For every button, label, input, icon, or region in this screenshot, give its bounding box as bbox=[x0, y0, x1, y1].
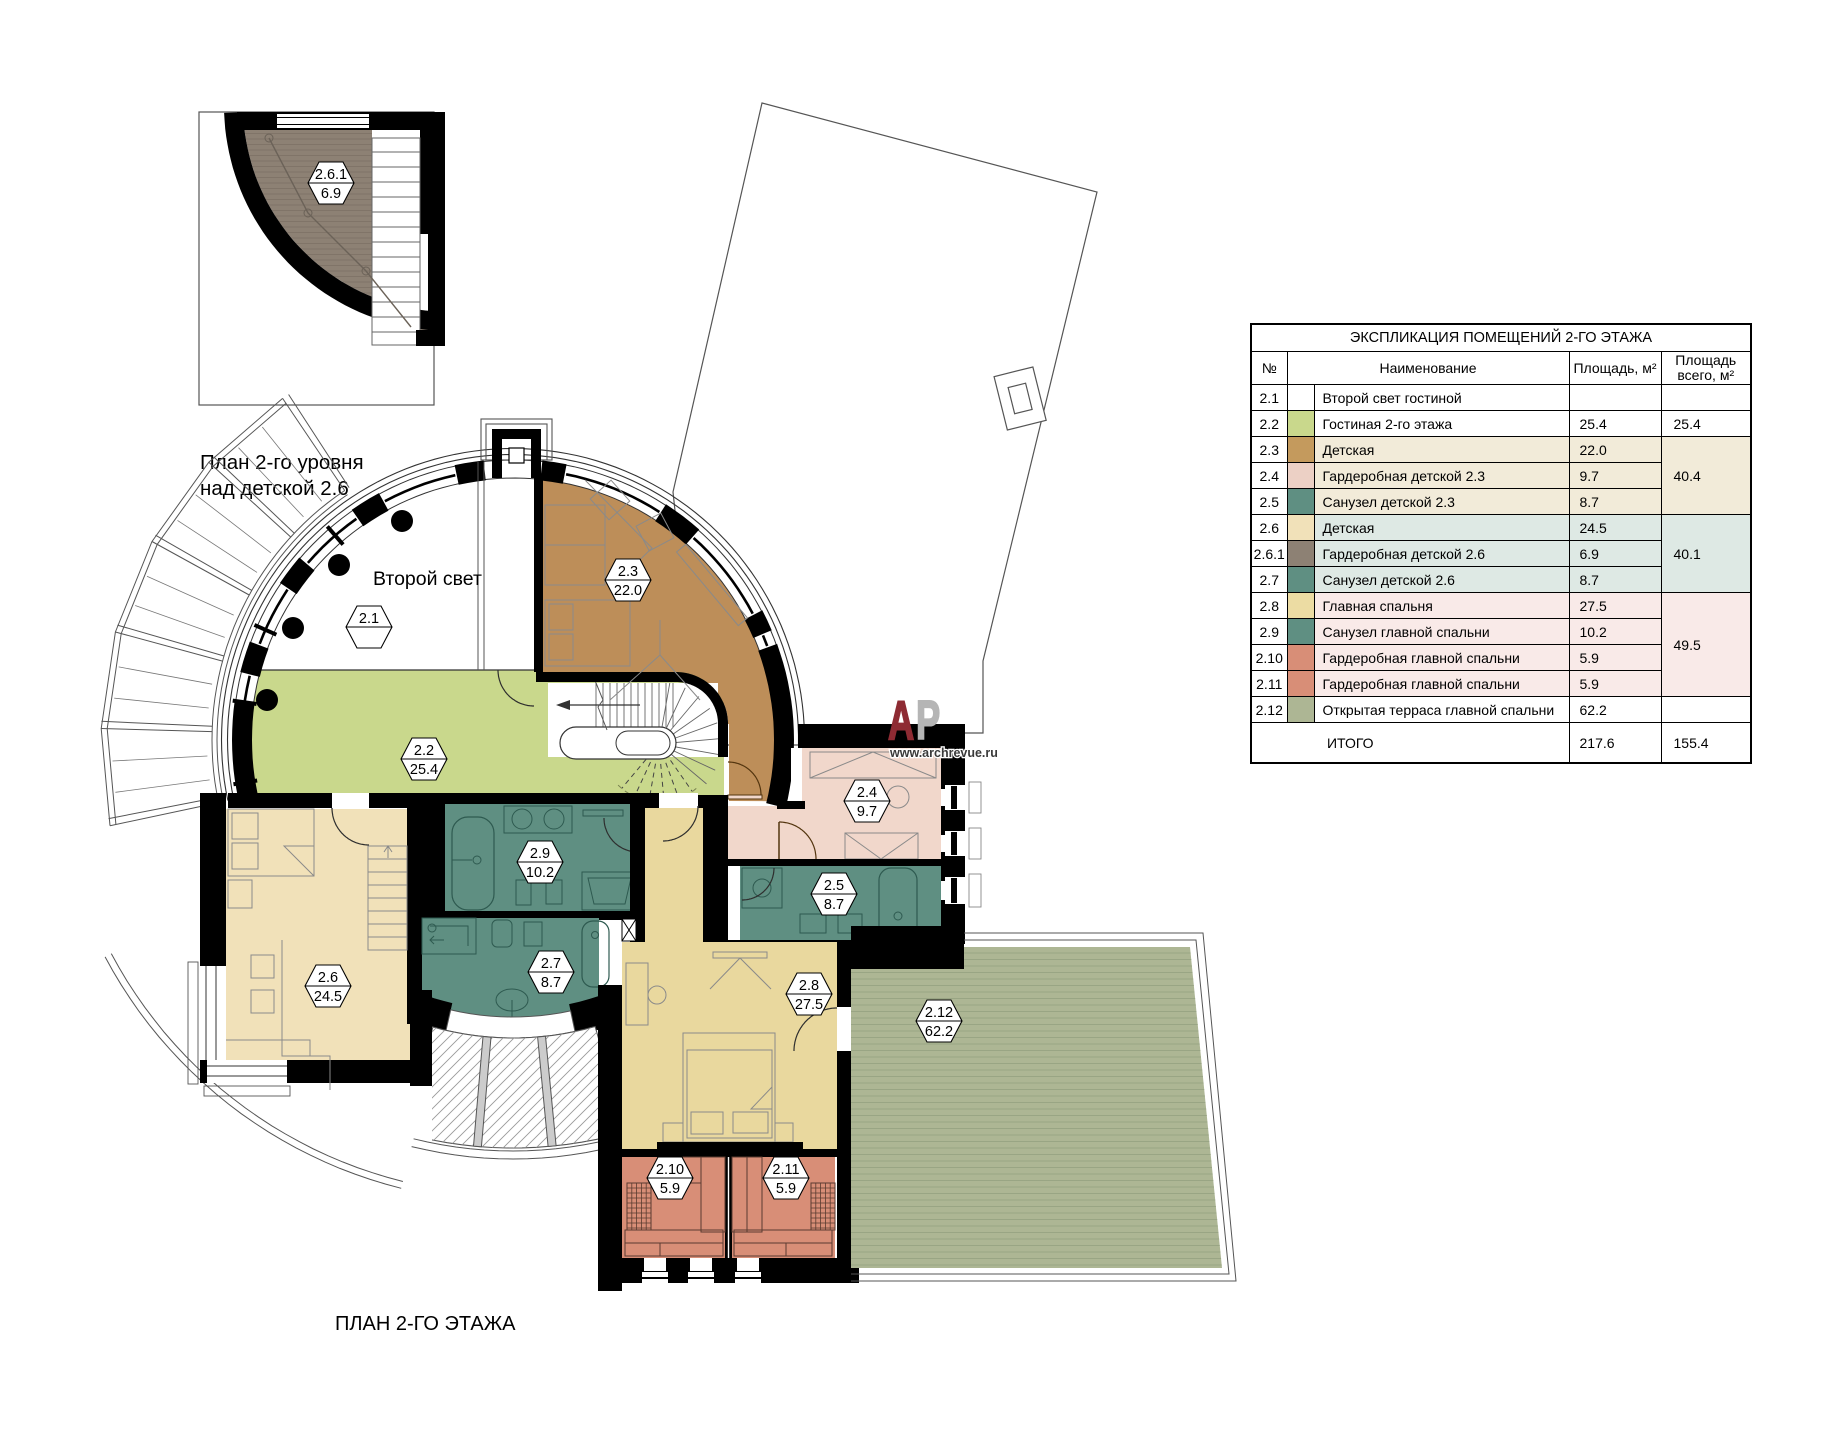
svg-text:22.0: 22.0 bbox=[614, 583, 642, 599]
svg-text:2.3: 2.3 bbox=[618, 564, 638, 580]
svg-text:www.archrevue.ru: www.archrevue.ru bbox=[889, 746, 998, 760]
svg-text:2.6.1: 2.6.1 bbox=[315, 167, 347, 183]
svg-text:над детской 2.6: над детской 2.6 bbox=[200, 477, 349, 500]
svg-text:2.12: 2.12 bbox=[925, 1005, 953, 1021]
svg-text:А: А bbox=[888, 689, 914, 750]
svg-text:2.5: 2.5 bbox=[824, 878, 844, 894]
svg-text:2.9: 2.9 bbox=[530, 846, 550, 862]
svg-text:2.8: 2.8 bbox=[799, 978, 819, 994]
svg-text:62.2: 62.2 bbox=[925, 1024, 953, 1040]
svg-text:Р: Р bbox=[916, 689, 940, 750]
svg-text:2.4: 2.4 bbox=[857, 785, 877, 801]
svg-text:5.9: 5.9 bbox=[660, 1181, 680, 1197]
svg-text:25.4: 25.4 bbox=[410, 762, 438, 778]
svg-text:9.7: 9.7 bbox=[857, 804, 877, 820]
svg-text:2.7: 2.7 bbox=[541, 956, 561, 972]
svg-text:2.2: 2.2 bbox=[414, 743, 434, 759]
svg-text:План 2-го уровня: План 2-го уровня bbox=[200, 451, 364, 474]
svg-text:2.10: 2.10 bbox=[656, 1162, 684, 1178]
svg-text:ПЛАН 2-ГО ЭТАЖА: ПЛАН 2-ГО ЭТАЖА bbox=[335, 1313, 516, 1335]
svg-text:6.9: 6.9 bbox=[321, 186, 341, 202]
svg-text:5.9: 5.9 bbox=[776, 1181, 796, 1197]
svg-text:Второй свет: Второй свет bbox=[373, 568, 482, 590]
svg-text:10.2: 10.2 bbox=[526, 865, 554, 881]
svg-text:24.5: 24.5 bbox=[314, 989, 342, 1005]
svg-text:27.5: 27.5 bbox=[795, 997, 823, 1013]
svg-text:2.11: 2.11 bbox=[772, 1162, 799, 1178]
svg-text:8.7: 8.7 bbox=[824, 897, 844, 913]
svg-text:2.1: 2.1 bbox=[359, 611, 379, 627]
svg-text:8.7: 8.7 bbox=[541, 975, 561, 991]
svg-text:2.6: 2.6 bbox=[318, 970, 338, 986]
